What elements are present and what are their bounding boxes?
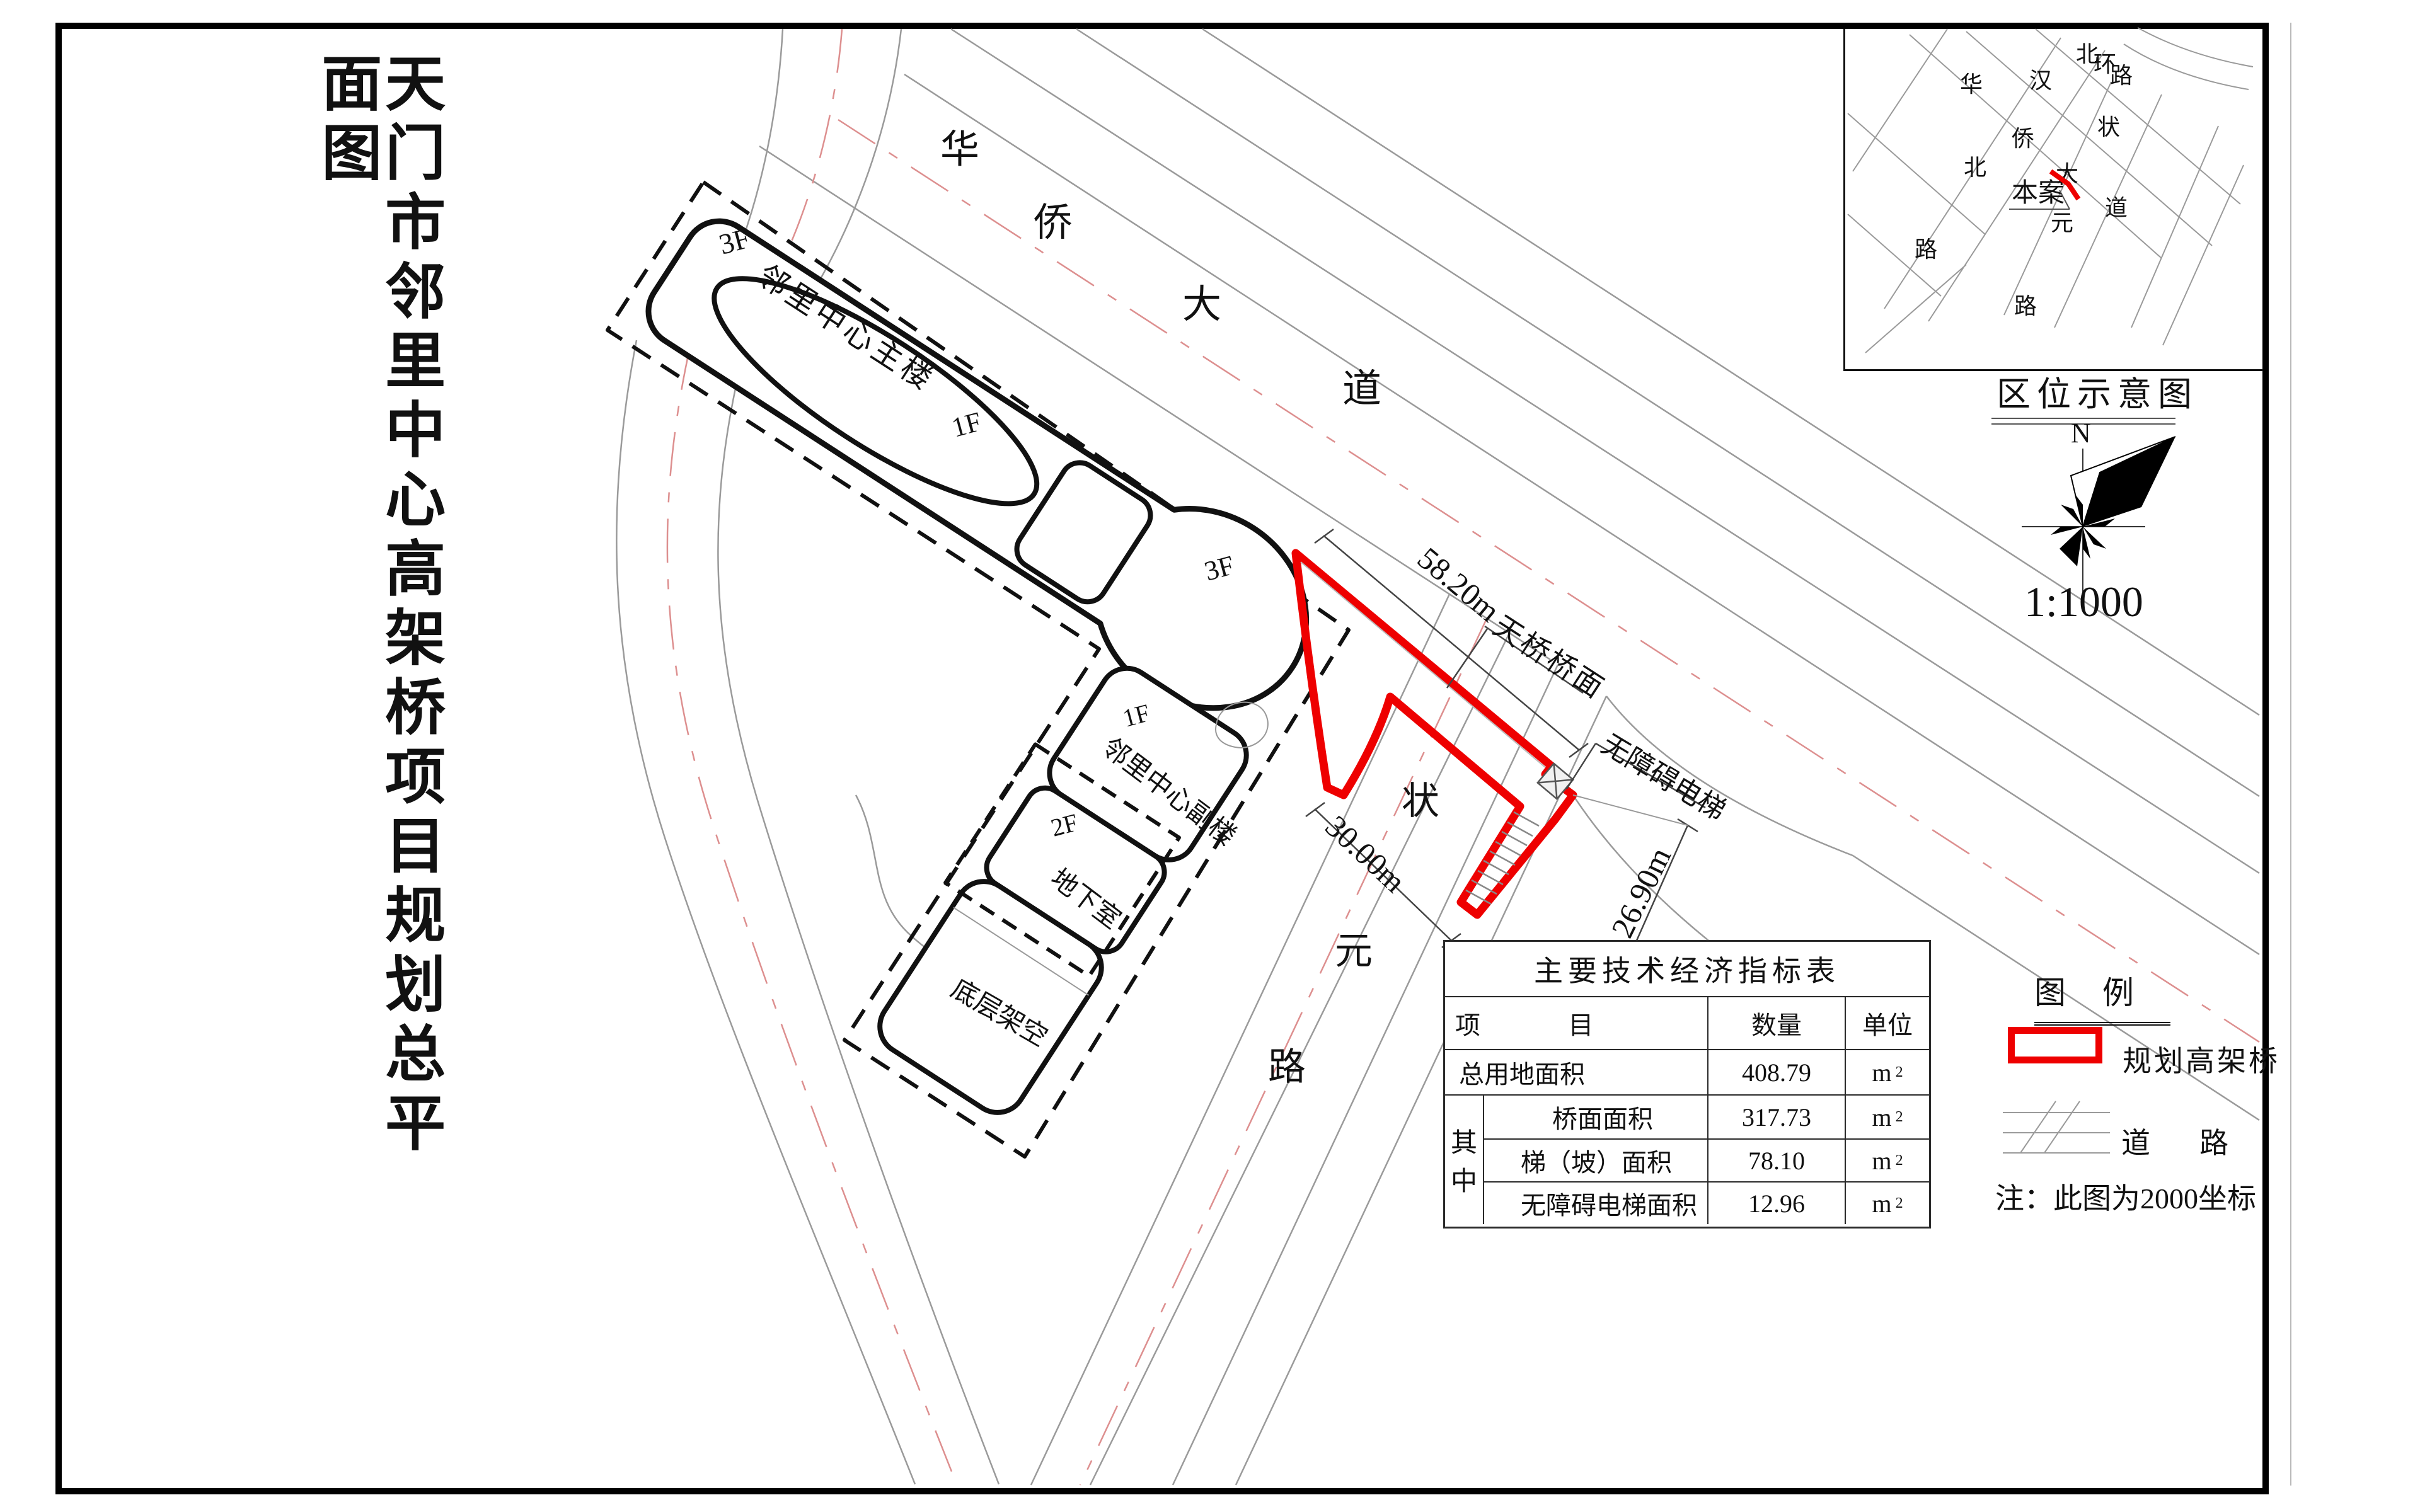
indicator-table: 主要技术经济指标表 项 目 数量 单位 总用地面积 408.79 m2 其中 桥… bbox=[1443, 940, 1931, 1228]
table-row-name: 梯（坡）面积 bbox=[1484, 1140, 1708, 1183]
table-header-qty: 数量 bbox=[1708, 997, 1846, 1050]
road-label-hua: 华 bbox=[940, 129, 979, 171]
elevator-label: 无障碍电梯 bbox=[1596, 729, 1731, 827]
table-row-name: 总用地面积 bbox=[1445, 1050, 1708, 1096]
legend-road-label: 道路 bbox=[2121, 1120, 2278, 1162]
deck-inner-edge bbox=[1301, 562, 1545, 767]
legend-road-swatch bbox=[2003, 1101, 2110, 1153]
road-label-lu: 路 bbox=[1268, 1046, 1306, 1088]
table-title: 主要技术经济指标表 bbox=[1445, 942, 1929, 997]
coordinate-note: 注：此图为2000坐标 bbox=[1995, 1176, 2256, 1217]
main-building-outline bbox=[620, 185, 1345, 748]
table-row-qty: 317.73 bbox=[1708, 1096, 1846, 1140]
building-footprints bbox=[620, 185, 1345, 748]
dim-road-width: 30.00m bbox=[1318, 808, 1412, 899]
inset-scale: 1:1000 bbox=[2024, 578, 2143, 626]
dim-deck-length: 58.20m bbox=[1411, 541, 1507, 629]
legend-title: 图例 bbox=[2034, 968, 2170, 1026]
legend-viaduct-swatch bbox=[2008, 1027, 2102, 1063]
table-row-name: 无障碍电梯面积 bbox=[1484, 1183, 1708, 1224]
table-row-unit: m2 bbox=[1846, 1183, 1929, 1224]
deck-label: 天桥桥面 bbox=[1488, 610, 1611, 706]
table-group-cell: 其中 bbox=[1445, 1096, 1484, 1224]
dim-ramp-length: 26.90m bbox=[1605, 842, 1678, 943]
inset-caption: 区位示意图 N bbox=[1991, 375, 2198, 449]
table-row-qty: 12.96 bbox=[1708, 1183, 1846, 1224]
header-item-2: 目 bbox=[1569, 1005, 1594, 1041]
road-label-dao: 道 bbox=[1342, 368, 1381, 411]
header-item-1: 项 bbox=[1455, 1005, 1480, 1041]
table-header-item: 项 目 bbox=[1445, 997, 1708, 1050]
table-row-unit: m2 bbox=[1846, 1140, 1929, 1183]
legend-viaduct-label: 规划高架桥 bbox=[2123, 1038, 2280, 1080]
table-header-unit: 单位 bbox=[1846, 997, 1929, 1050]
viaduct-outline bbox=[1296, 553, 1573, 915]
road-label-da: 大 bbox=[1182, 283, 1221, 326]
road-label-yuan: 元 bbox=[1335, 931, 1373, 972]
table-row-unit: m2 bbox=[1846, 1050, 1929, 1096]
table-row-qty: 78.10 bbox=[1708, 1140, 1846, 1183]
table-row-unit: m2 bbox=[1846, 1096, 1929, 1140]
north-letter: N bbox=[2071, 418, 2091, 449]
table-row-qty: 408.79 bbox=[1708, 1050, 1846, 1096]
table-row-name: 桥面面积 bbox=[1484, 1096, 1708, 1140]
inset-map-box bbox=[1843, 29, 2263, 371]
road-label-qiao: 侨 bbox=[1034, 202, 1073, 244]
site-plan-sheet: { "page_title": "天门市邻里中心高架桥项目规划总平面图", "p… bbox=[0, 0, 2420, 1512]
inset-title: 区位示意图 bbox=[1997, 375, 2198, 413]
planned-viaduct bbox=[1296, 553, 1573, 915]
road-label-zhuang: 状 bbox=[1402, 781, 1439, 822]
